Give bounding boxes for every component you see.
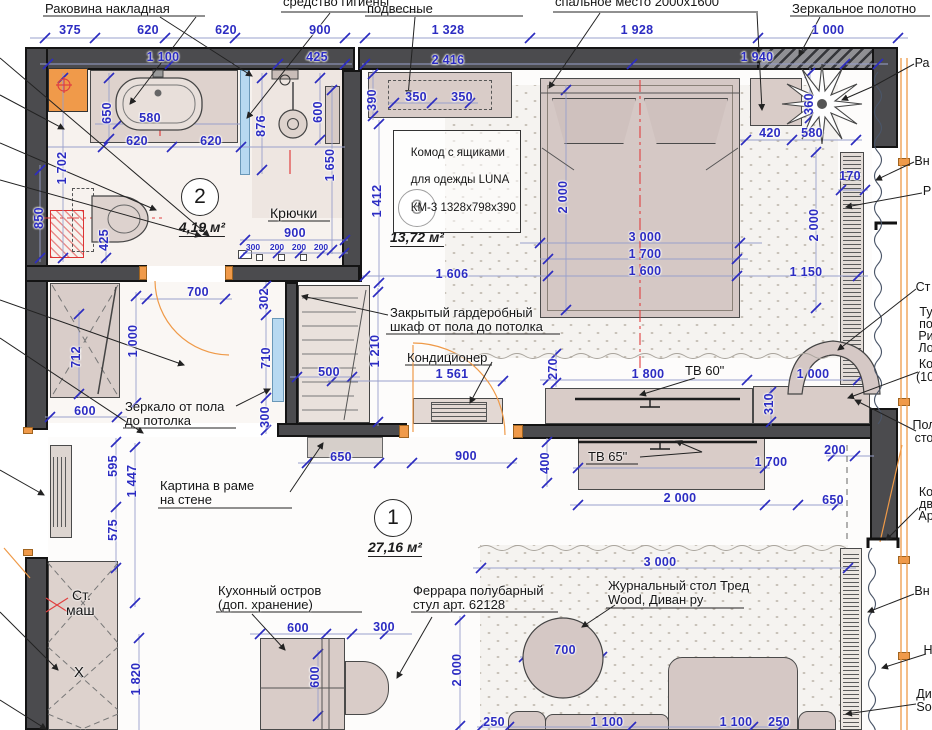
wall-bath-bottom-right — [225, 265, 360, 282]
dimension: 400 — [538, 452, 552, 474]
hall-wardrobe — [50, 283, 120, 398]
dimension: 1 700 — [755, 455, 788, 469]
dimension: 1 000 — [812, 23, 845, 37]
dimension: 600 — [311, 101, 325, 123]
room-area-1: 27,16 м² — [368, 539, 422, 557]
dimension: 580 — [139, 111, 161, 125]
label-ac: Кондиционер — [407, 351, 487, 365]
dimension: 310 — [762, 393, 776, 415]
dimension: 270 — [546, 358, 560, 380]
dresser-label-line2: для одежды LUNA — [411, 174, 510, 186]
dimension: 600 — [74, 404, 96, 418]
dresser-label-line3: КМ-3 1328х798х390 — [411, 202, 516, 214]
room-marker-2: 2 — [181, 178, 219, 216]
dimension: 200 — [824, 443, 846, 457]
wall-left-bottom — [25, 557, 48, 730]
shower-shelf — [325, 86, 340, 144]
label-hanging: подвесные — [367, 2, 433, 16]
dimension: 650 — [330, 450, 352, 464]
radiator-grille — [843, 156, 861, 381]
dimension: 900 — [455, 449, 477, 463]
dimension: 900 — [309, 23, 331, 37]
sofa-armrest — [508, 711, 546, 730]
dimension: 390 — [365, 89, 379, 111]
edge-label: Р — [923, 184, 931, 198]
label-table-2: Wood, Диван ру — [608, 593, 703, 607]
label-sink: Раковина накладная — [45, 2, 170, 16]
dimension: 250 — [483, 715, 505, 729]
tv-stand-bedroom — [545, 388, 753, 424]
dimension: 712 — [69, 346, 83, 368]
dimension: 650 — [100, 102, 114, 124]
dimension: 1 820 — [129, 663, 143, 696]
edge-label: Ра — [915, 56, 930, 70]
dimension: 1 412 — [370, 185, 384, 218]
edge-label: Ди — [916, 687, 931, 701]
dimension: 620 — [126, 134, 148, 148]
dimension: 3 000 — [644, 555, 677, 569]
dimension: 302 — [257, 288, 271, 310]
wall-left — [25, 47, 48, 430]
edge-label: Ст — [916, 280, 931, 294]
label-mirror-2: до потолка — [125, 414, 191, 428]
wall-bath-bottom-left — [25, 265, 147, 282]
wall-mirror — [272, 318, 284, 402]
dimension: 1 100 — [591, 715, 624, 729]
hook — [256, 254, 263, 261]
dimension: 420 — [759, 126, 781, 140]
edge-label: Н — [923, 643, 932, 657]
dimension: 620 — [137, 23, 159, 37]
ac-grille — [431, 402, 487, 422]
dimension: 876 — [254, 115, 268, 137]
dimension: 200 — [314, 242, 328, 252]
dimension: 1 700 — [629, 247, 662, 261]
dimension: 1 000 — [797, 367, 830, 381]
radiator-living-grille — [53, 457, 69, 527]
label-x-mark: X — [74, 665, 84, 682]
wall-right-living — [870, 408, 898, 540]
edge-label: (10 — [916, 370, 932, 384]
dimension: 200 — [292, 242, 306, 252]
dimension: 600 — [287, 621, 309, 635]
door-frame — [399, 425, 409, 438]
dimension: 360 — [802, 93, 816, 115]
dimension: 1 150 — [790, 265, 823, 279]
dimension: 500 — [318, 365, 340, 379]
dimension: 700 — [187, 285, 209, 299]
wall-right-top — [872, 47, 898, 148]
label-island-2: (доп. хранение) — [218, 598, 313, 612]
label-tv60: ТВ 60" — [685, 364, 724, 378]
dimension: 2 000 — [664, 491, 697, 505]
dimension: 1 447 — [125, 465, 139, 498]
wall-bath-bedroom — [342, 70, 362, 282]
dimension: 1 328 — [432, 23, 465, 37]
edge-label: Ко — [919, 357, 932, 371]
dimension: 250 — [768, 715, 790, 729]
dimension: 1 210 — [368, 335, 382, 368]
dimension: 620 — [200, 134, 222, 148]
label-mirror-cloth: Зеркальное полотно — [792, 2, 916, 16]
dimension: 425 — [97, 229, 111, 251]
dimension: 425 — [306, 50, 328, 64]
door-frame — [139, 266, 147, 280]
dimension: 300 — [258, 406, 272, 428]
edge-label: So — [916, 700, 931, 714]
closet-interior — [298, 285, 370, 423]
dimension: 1 100 — [720, 715, 753, 729]
dimension: 1 800 — [632, 367, 665, 381]
dimension: 300 — [246, 242, 260, 252]
sofa-armrest — [798, 711, 836, 730]
wall-top-hatched — [757, 47, 878, 70]
dimension: 600 — [308, 666, 322, 688]
dimension: 2 000 — [556, 181, 570, 214]
label-painting-2: на стене — [160, 493, 212, 507]
edge-label: сто — [915, 431, 932, 445]
dimension: 710 — [259, 347, 273, 369]
dimension: 700 — [554, 643, 576, 657]
hook — [278, 254, 285, 261]
edge-label: Ло — [918, 341, 932, 355]
window-frame — [898, 556, 910, 564]
edge-label: Вн — [914, 154, 929, 168]
door-frame — [23, 427, 33, 434]
tile-strip — [240, 70, 250, 175]
dimension: 1 940 — [741, 50, 774, 64]
dimension: 1 606 — [436, 267, 469, 281]
label-sleeping: спальное место 2000х1600 — [555, 0, 719, 9]
dimension: 1 600 — [629, 264, 662, 278]
dimension: 2 000 — [807, 209, 821, 242]
dimension: 3 000 — [629, 230, 662, 244]
dresser-drawers — [388, 80, 492, 110]
pillow — [552, 98, 636, 144]
dresser-label: Комод с ящиками для одежды LUNA КМ-3 132… — [393, 130, 521, 233]
edge-label: Вн — [914, 584, 929, 598]
edge-label: Пол — [913, 418, 932, 432]
door-frame — [225, 266, 233, 280]
dimension: 170 — [839, 169, 861, 183]
window-frame — [898, 398, 910, 406]
door-frame — [513, 425, 523, 438]
wall-living-top — [513, 424, 872, 439]
window-frame — [898, 158, 910, 166]
cistern-outline — [72, 188, 94, 252]
window-frame — [898, 652, 910, 660]
dimension: 595 — [106, 455, 120, 477]
hook — [300, 254, 307, 261]
dresser-label-line1: Комод с ящиками — [411, 147, 505, 159]
dimension: 2 000 — [450, 654, 464, 687]
dimension: 1 928 — [621, 23, 654, 37]
dimension: 650 — [822, 493, 844, 507]
dimension: 1 000 — [126, 325, 140, 358]
label-tv65: ТВ 65" — [588, 450, 627, 464]
wall-closet-left — [285, 282, 298, 437]
dimension: 1 561 — [436, 367, 469, 381]
pillow — [644, 98, 728, 144]
dimension: 350 — [405, 90, 427, 104]
dimension: 2 416 — [432, 53, 465, 67]
dimension: 1 702 — [55, 152, 69, 185]
dimension: 350 — [451, 90, 473, 104]
nightstand — [750, 78, 802, 126]
dimension: 575 — [106, 519, 120, 541]
dimension: 850 — [32, 207, 46, 229]
dimension: 1 100 — [147, 50, 180, 64]
door-frame — [23, 549, 33, 556]
dimension: 580 — [801, 126, 823, 140]
dimension: 620 — [215, 23, 237, 37]
wall-closet-bottom — [277, 423, 407, 437]
label-washer-2: маш — [66, 603, 95, 618]
dimension: 200 — [270, 242, 284, 252]
edge-label: Ар — [918, 509, 932, 523]
label-stool-2: стул арт. 62128 — [413, 598, 505, 612]
dimension: 375 — [59, 23, 81, 37]
radiator-balcony-grille — [843, 551, 859, 727]
kitchen-island — [260, 638, 345, 730]
label-hooks: Крючки — [270, 206, 317, 221]
vent-shaft — [48, 68, 88, 112]
label-closet-2: шкаф от пола до потолка — [390, 320, 543, 334]
dimension: 300 — [373, 620, 395, 634]
dimension: 900 — [284, 226, 306, 240]
room-area-2: 4,19 м² — [179, 219, 225, 237]
dimension: 1 650 — [323, 149, 337, 182]
room-marker-1: 1 — [374, 499, 412, 537]
floor-plan: Раковина накладная средство гигиены подв… — [0, 0, 932, 730]
